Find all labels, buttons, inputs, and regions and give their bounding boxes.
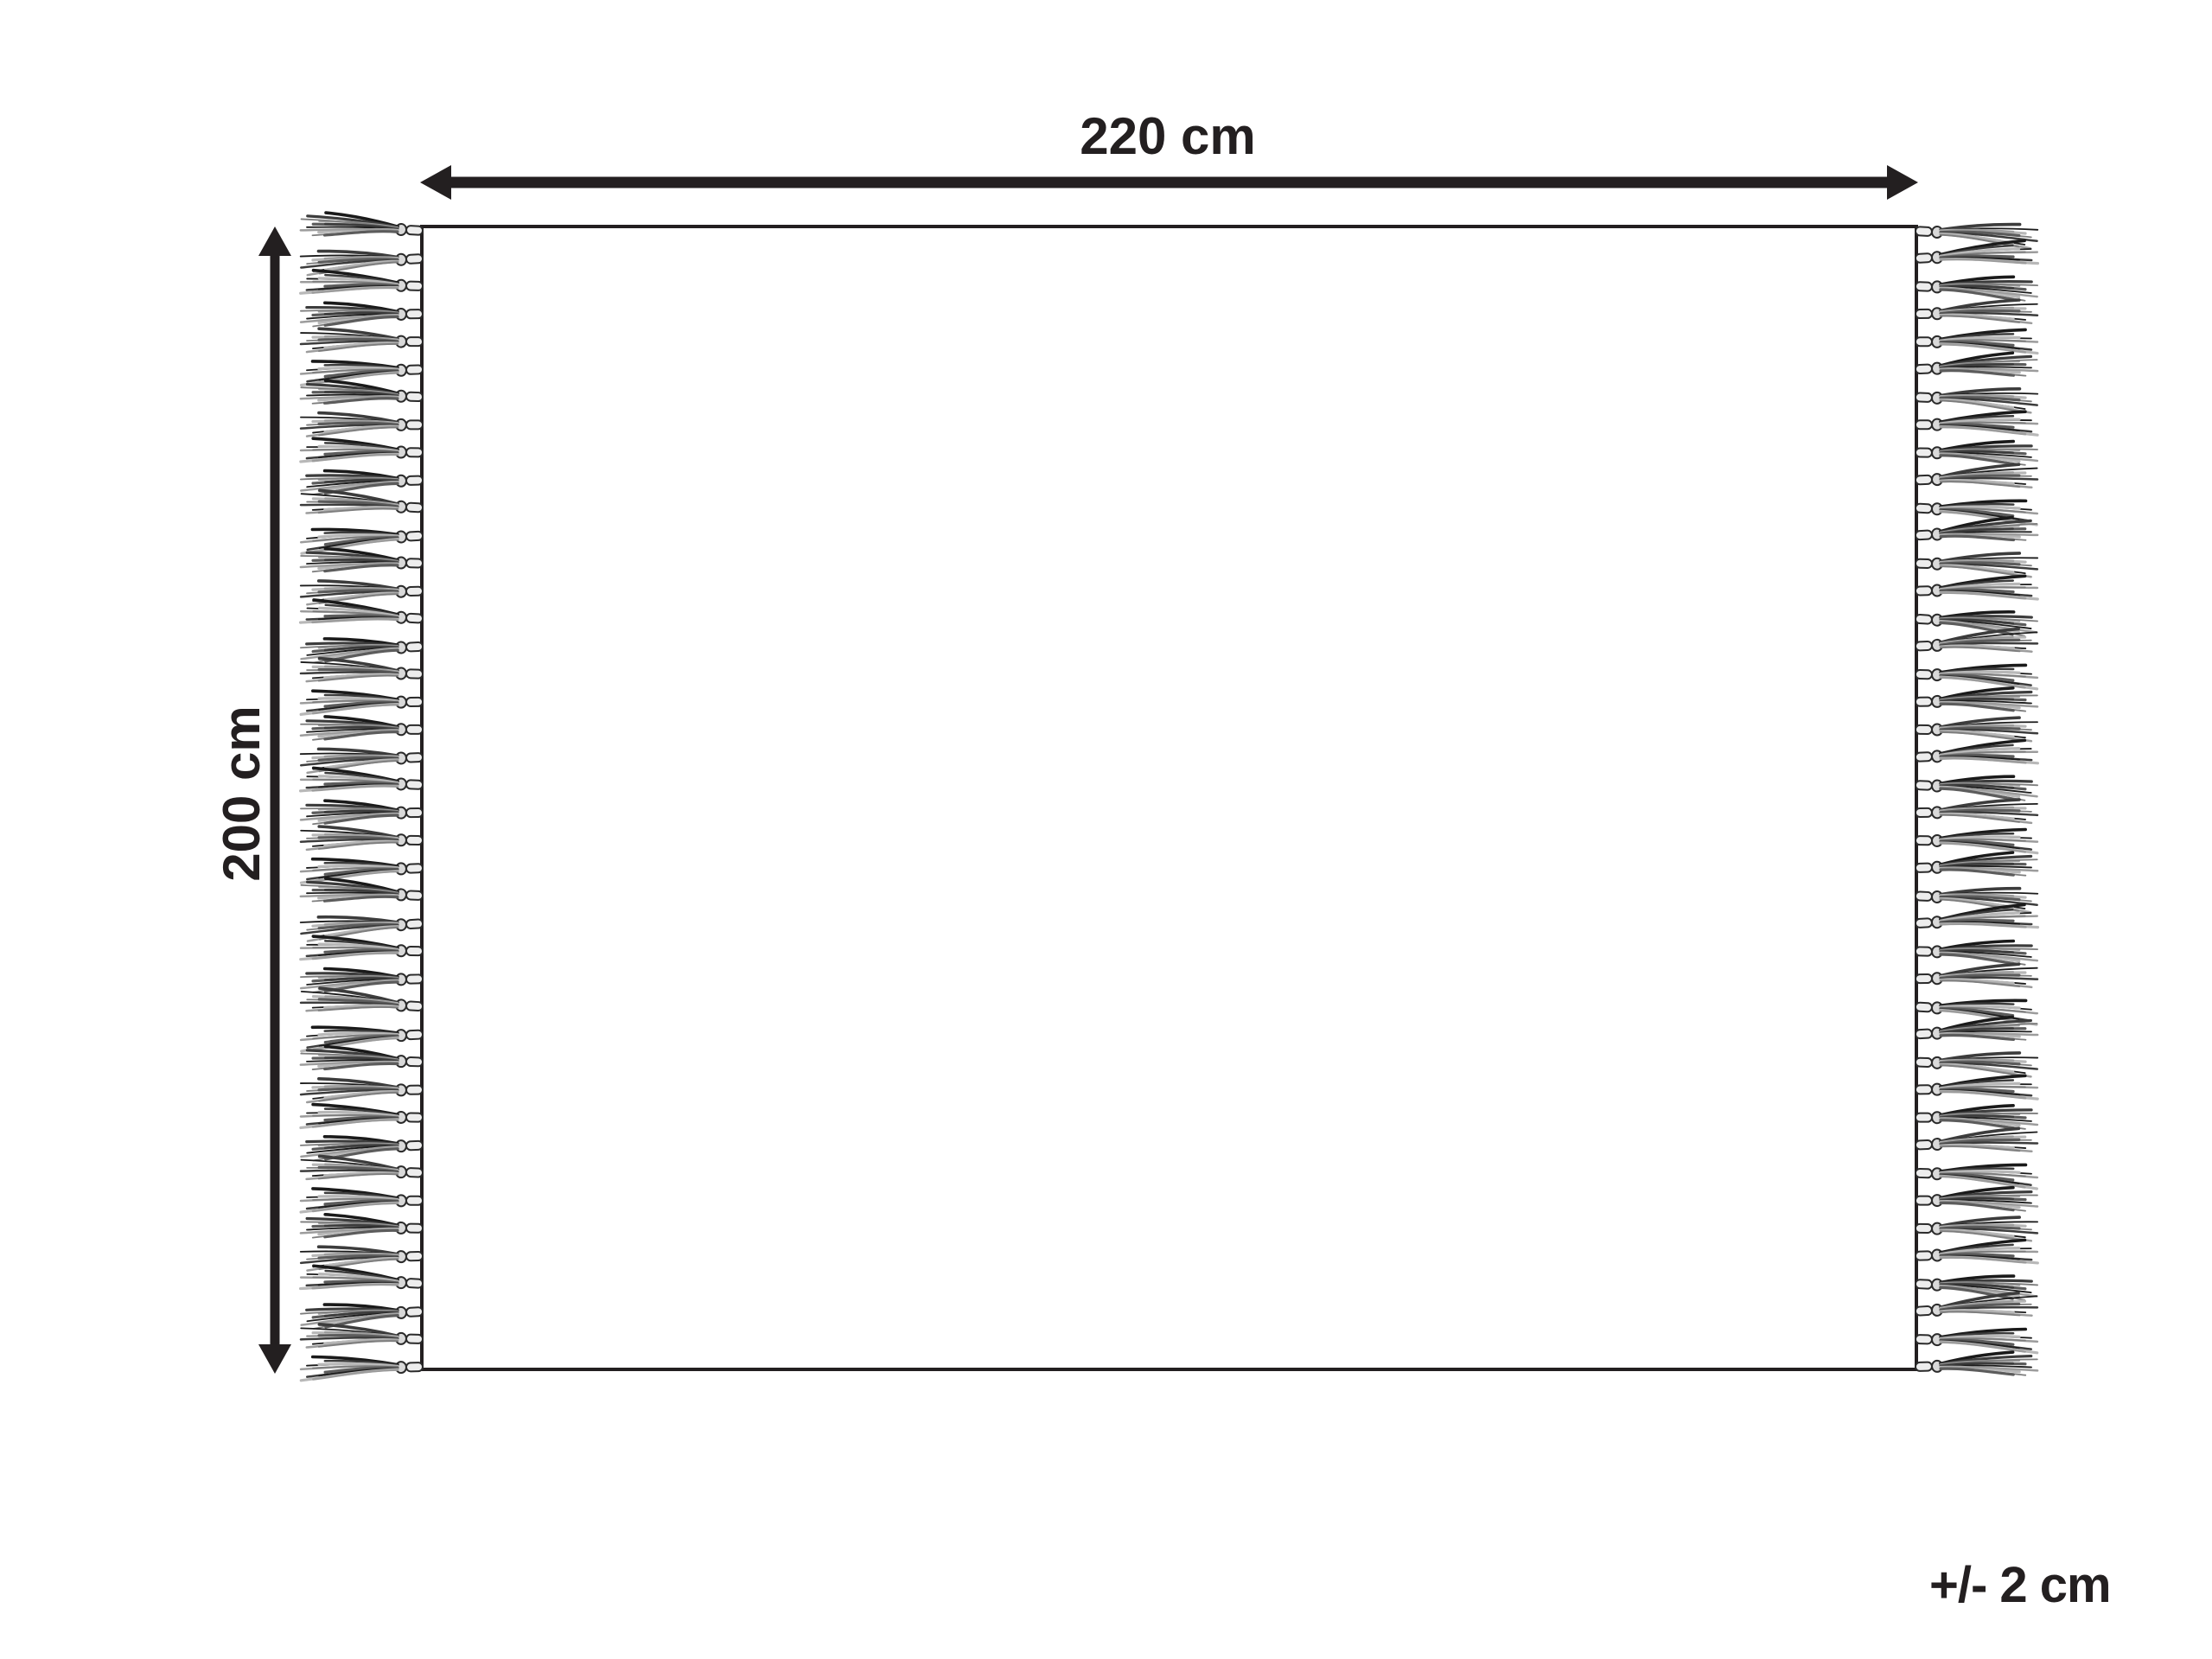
width-dimension-arrow [420, 165, 1918, 200]
tassel [1916, 576, 2038, 602]
tassel [1915, 606, 2037, 636]
tassel [301, 438, 423, 463]
tassel [301, 357, 424, 386]
tassel [1916, 1188, 2037, 1212]
tassel [1916, 1327, 2038, 1353]
arrowhead-left-icon [420, 165, 451, 200]
tassel [301, 856, 424, 883]
rug-dimension-diagram: 220 cm 200 cm +/- 2 cm [0, 0, 2212, 1659]
tassel [301, 329, 423, 353]
tassel [1916, 464, 2038, 491]
tassel [301, 380, 424, 408]
tassel [1916, 828, 2037, 853]
fringe-left [300, 211, 423, 1380]
tassel [1916, 300, 2037, 325]
tassel [1916, 661, 2038, 688]
tassel [1915, 884, 2037, 913]
tassel [1916, 1351, 2038, 1377]
tassel [301, 826, 423, 852]
tassel [1915, 219, 2037, 249]
tassel [1915, 740, 2037, 769]
tassel [1916, 412, 2037, 436]
tassel [1916, 329, 2037, 354]
tassel [1916, 1240, 2038, 1267]
tassel [301, 302, 423, 327]
tassel [1916, 687, 2037, 712]
tassel [1916, 800, 2037, 824]
rug-outline [422, 227, 1916, 1369]
tassel [301, 1355, 424, 1381]
tassel [1916, 964, 2038, 990]
tassel [1915, 1160, 2037, 1189]
arrowhead-up-icon [258, 227, 291, 256]
tassel [301, 877, 424, 907]
tassel [1915, 1272, 2037, 1301]
diagram-canvas [0, 0, 2212, 1659]
tassel [1916, 1216, 2037, 1241]
arrowhead-right-icon [1887, 165, 1918, 200]
tassel [1915, 773, 2037, 801]
tassel [1915, 1016, 2037, 1045]
tassel [301, 412, 423, 437]
tassel [1915, 516, 2037, 546]
tassel [1916, 1105, 2037, 1129]
tassel [301, 689, 423, 714]
tassel [301, 717, 423, 741]
tassel [301, 1188, 423, 1212]
tassel [1916, 551, 2038, 577]
arrowhead-down-icon [258, 1344, 291, 1374]
tassel [1916, 274, 2038, 301]
tassel [301, 548, 424, 574]
tassel [1915, 352, 2037, 380]
tassel [1916, 1050, 2038, 1076]
tassel [300, 1022, 423, 1051]
tassel [1916, 939, 2038, 965]
tassel [1915, 1128, 2037, 1157]
width-dimension-label: 220 cm [418, 111, 1918, 163]
tassel [1916, 1075, 2037, 1101]
tassel [1915, 385, 2037, 413]
tolerance-label: +/- 2 cm [1929, 1560, 2111, 1611]
tassel [1916, 852, 2038, 878]
tassel [301, 1046, 424, 1073]
tassel [301, 1077, 423, 1102]
tassel [1916, 718, 2037, 742]
tassel [301, 1104, 423, 1128]
tassel [300, 523, 423, 553]
fringe-right [1915, 219, 2037, 1378]
tassel [301, 801, 423, 825]
tassel [301, 211, 424, 241]
tassel [1916, 440, 2037, 465]
height-dimension-label: 200 cm [216, 705, 268, 882]
tassel [301, 1214, 423, 1239]
